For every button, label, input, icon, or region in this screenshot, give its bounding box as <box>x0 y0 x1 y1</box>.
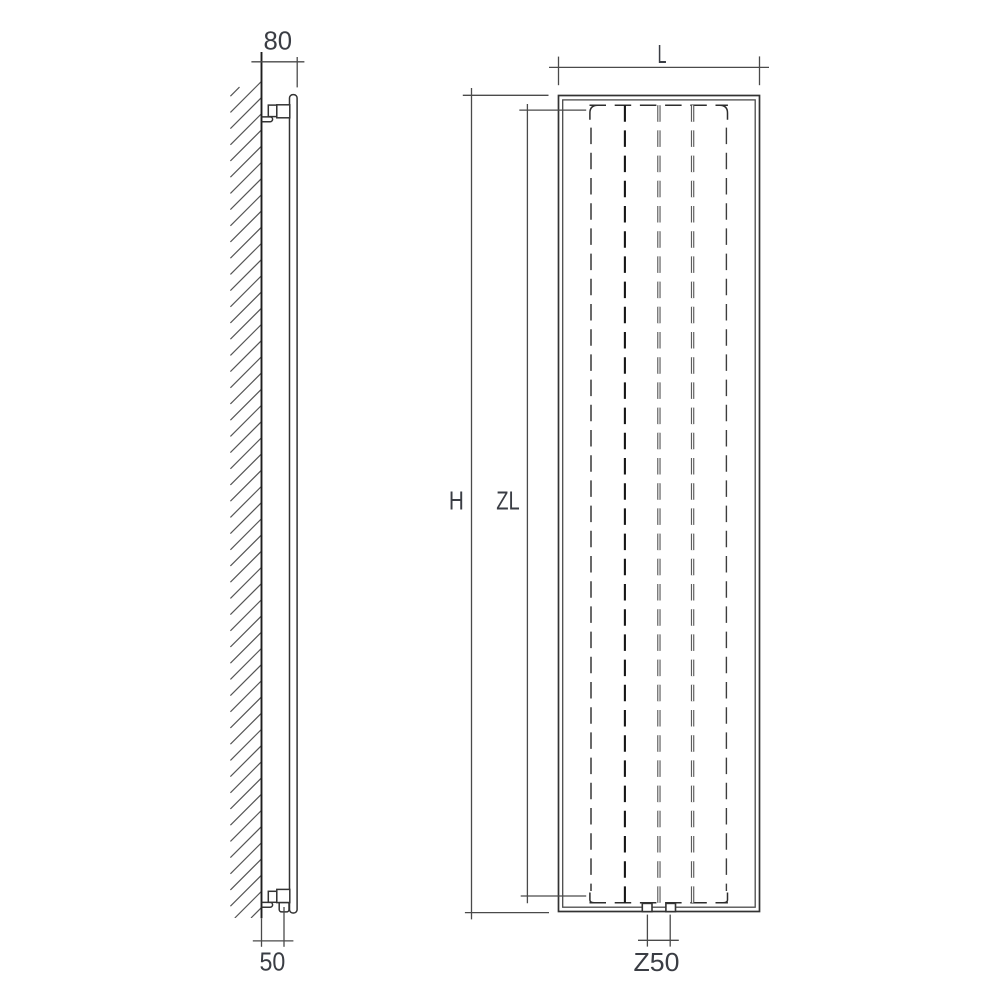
svg-text:ZL: ZL <box>496 486 520 516</box>
svg-text:L: L <box>658 39 667 69</box>
svg-text:H: H <box>449 486 464 516</box>
svg-text:Z50: Z50 <box>634 947 680 977</box>
svg-text:80: 80 <box>264 25 293 55</box>
svg-text:50: 50 <box>260 947 286 977</box>
